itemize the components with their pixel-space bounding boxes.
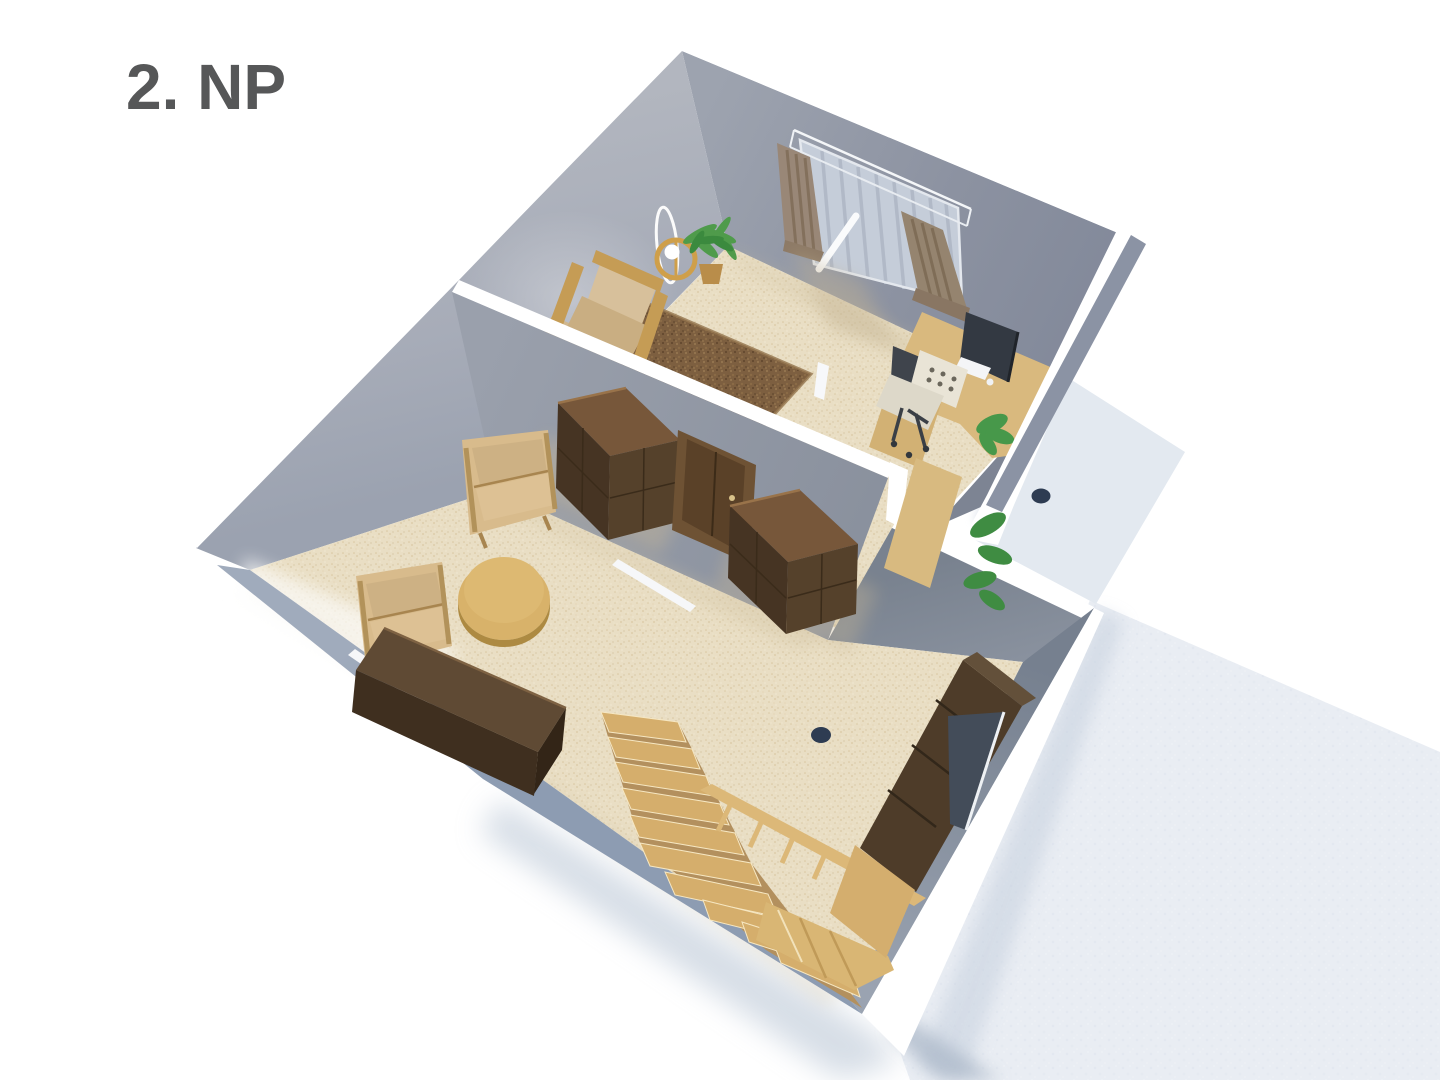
svg-text:2. NP: 2. NP: [126, 51, 286, 123]
